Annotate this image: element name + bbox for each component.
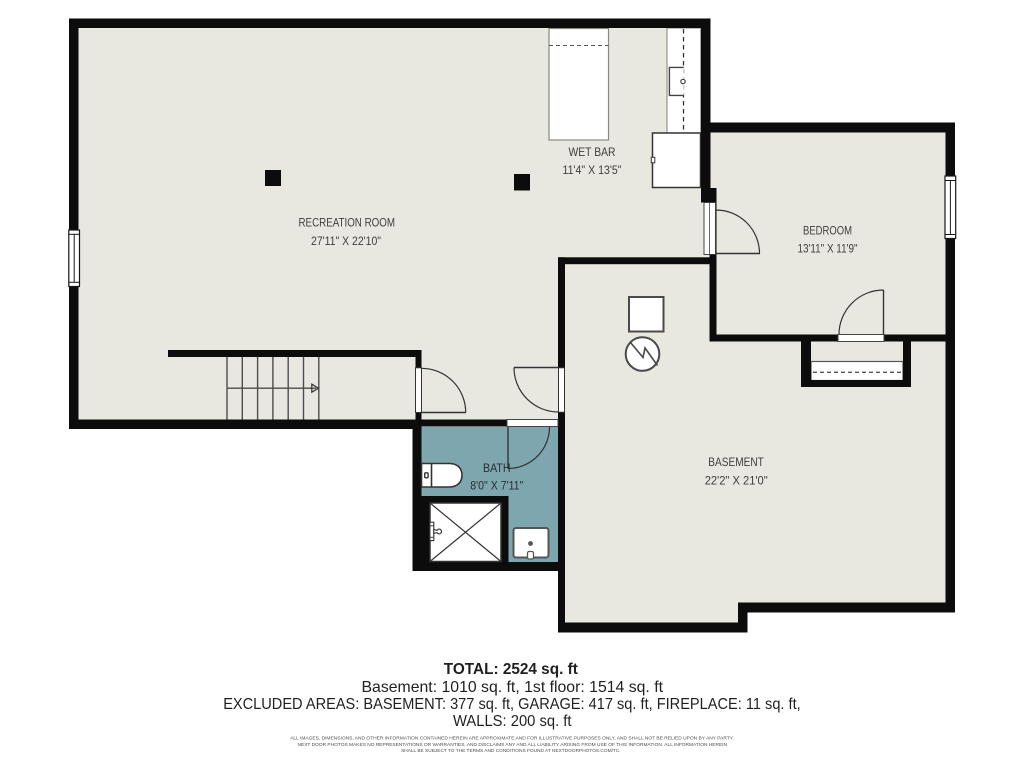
- svg-text:11'4" X 13'5": 11'4" X 13'5": [563, 163, 622, 177]
- svg-text:BASEMENT: BASEMENT: [708, 455, 764, 469]
- svg-text:22'2" X 21'0": 22'2" X 21'0": [705, 474, 768, 488]
- svg-text:27'11" X 22'10": 27'11" X 22'10": [311, 234, 381, 248]
- svg-text:WALLS: 200 sq. ft: WALLS: 200 sq. ft: [453, 713, 572, 730]
- svg-text:SHALL BE SUBJECT TO THE TERMS: SHALL BE SUBJECT TO THE TERMS AND CONDIT…: [401, 748, 620, 754]
- svg-text:RECREATION ROOM: RECREATION ROOM: [299, 216, 396, 230]
- svg-text:EXCLUDED AREAS: BASEMENT: 377: EXCLUDED AREAS: BASEMENT: 377 sq. ft, GA…: [223, 696, 801, 713]
- svg-text:NEXT DOOR PHOTOS MAKES NO REPR: NEXT DOOR PHOTOS MAKES NO REPRESENTATION…: [298, 742, 728, 748]
- svg-text:ALL IMAGES, DIMENSIONS, AND OT: ALL IMAGES, DIMENSIONS, AND OTHER INFORM…: [290, 736, 734, 742]
- svg-text:BEDROOM: BEDROOM: [803, 224, 852, 238]
- svg-text:BATH: BATH: [483, 461, 511, 475]
- svg-text:TOTAL: 2524 sq. ft: TOTAL: 2524 sq. ft: [444, 661, 579, 678]
- svg-text:8'0" X 7'11": 8'0" X 7'11": [470, 479, 523, 493]
- svg-text:13'11" X 11'9": 13'11" X 11'9": [798, 242, 858, 256]
- svg-text:Basement: 1010 sq. ft, 1st flo: Basement: 1010 sq. ft, 1st floor: 1514 s…: [362, 679, 664, 696]
- svg-text:WET BAR: WET BAR: [569, 145, 616, 159]
